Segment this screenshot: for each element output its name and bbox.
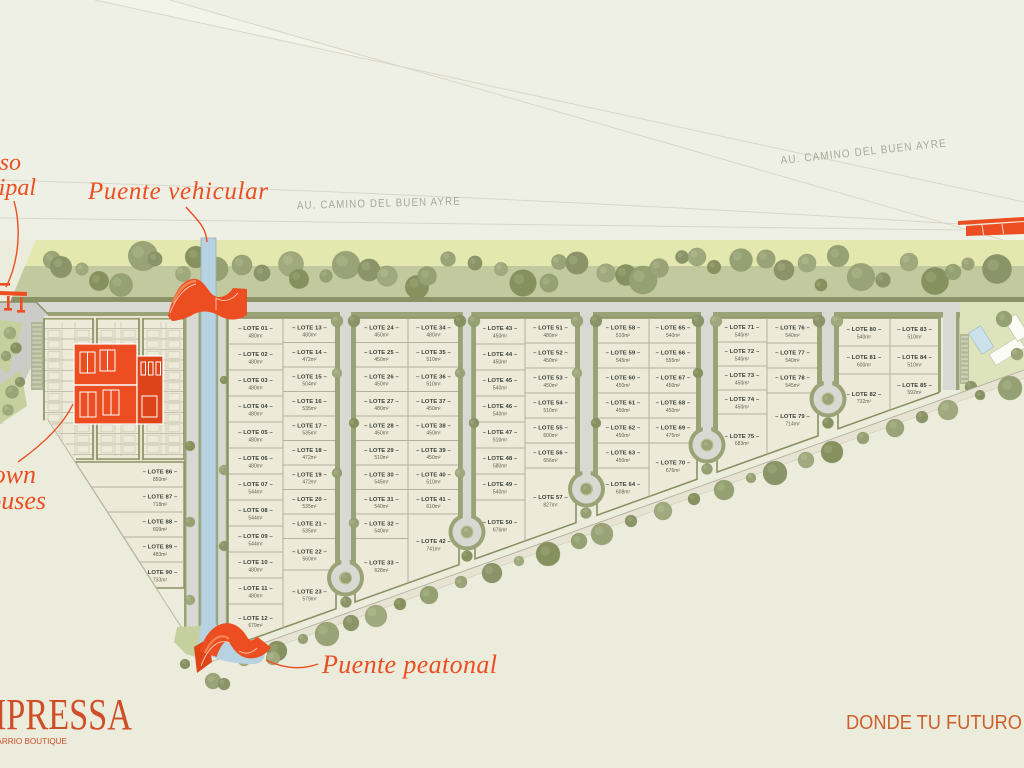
svg-text:– LOTE 48 –: – LOTE 48 – bbox=[483, 456, 518, 462]
svg-text:472m²: 472m² bbox=[302, 357, 317, 363]
svg-text:450m²: 450m² bbox=[374, 382, 389, 388]
svg-text:– LOTE 35 –: – LOTE 35 – bbox=[416, 350, 451, 356]
svg-text:510m²: 510m² bbox=[907, 362, 922, 368]
svg-text:480m²: 480m² bbox=[302, 333, 317, 339]
svg-text:628m²: 628m² bbox=[374, 568, 389, 574]
svg-text:– LOTE 88 –: – LOTE 88 – bbox=[143, 520, 178, 526]
svg-text:450m²: 450m² bbox=[543, 383, 558, 389]
svg-text:504m²: 504m² bbox=[302, 382, 317, 388]
svg-text:– LOTE 51 –: – LOTE 51 – bbox=[533, 326, 568, 332]
svg-text:– LOTE 78 –: – LOTE 78 – bbox=[775, 376, 810, 382]
svg-text:– LOTE 18 –: – LOTE 18 – bbox=[292, 448, 327, 454]
svg-text:510m²: 510m² bbox=[426, 382, 441, 388]
svg-text:– LOTE 52 –: – LOTE 52 – bbox=[533, 351, 568, 357]
svg-text:– LOTE 85 –: – LOTE 85 – bbox=[897, 383, 932, 389]
svg-text:510m²: 510m² bbox=[616, 333, 631, 339]
svg-text:– LOTE 04 –: – LOTE 04 – bbox=[238, 404, 273, 410]
svg-text:540m²: 540m² bbox=[735, 332, 750, 338]
svg-text:– LOTE 06 –: – LOTE 06 – bbox=[238, 456, 273, 462]
svg-text:– LOTE 13 –: – LOTE 13 – bbox=[292, 325, 327, 331]
svg-text:– LOTE 21 –: – LOTE 21 – bbox=[292, 522, 327, 528]
svg-text:– LOTE 44 –: – LOTE 44 – bbox=[483, 352, 518, 358]
svg-text:510m²: 510m² bbox=[374, 455, 389, 461]
svg-text:– LOTE 30 –: – LOTE 30 – bbox=[364, 472, 399, 478]
svg-text:town: town bbox=[0, 460, 36, 489]
svg-text:– LOTE 80 –: – LOTE 80 – bbox=[847, 327, 882, 333]
svg-text:545m²: 545m² bbox=[785, 383, 800, 389]
svg-text:544m²: 544m² bbox=[248, 489, 263, 495]
svg-text:– LOTE 61 –: – LOTE 61 – bbox=[606, 401, 641, 407]
svg-text:732m²: 732m² bbox=[857, 399, 872, 405]
svg-text:– LOTE 15 –: – LOTE 15 – bbox=[292, 374, 327, 380]
svg-text:– LOTE 11 –: – LOTE 11 – bbox=[238, 586, 273, 592]
svg-text:– LOTE 08 –: – LOTE 08 – bbox=[238, 508, 273, 514]
svg-text:CIPRESSA: CIPRESSA bbox=[0, 690, 132, 739]
svg-text:– LOTE 76 –: – LOTE 76 – bbox=[775, 326, 810, 332]
svg-text:827m²: 827m² bbox=[543, 502, 558, 508]
svg-text:676m²: 676m² bbox=[666, 468, 681, 474]
svg-text:480m²: 480m² bbox=[248, 567, 263, 573]
svg-text:– LOTE 50 –: – LOTE 50 – bbox=[483, 520, 518, 526]
svg-text:– LOTE 24 –: – LOTE 24 – bbox=[364, 325, 399, 331]
svg-text:– LOTE 77 –: – LOTE 77 – bbox=[775, 351, 810, 357]
svg-text:– LOTE 17 –: – LOTE 17 – bbox=[292, 423, 327, 429]
svg-text:– LOTE 68 –: – LOTE 68 – bbox=[656, 401, 691, 407]
svg-text:714m²: 714m² bbox=[785, 421, 800, 427]
svg-text:544m²: 544m² bbox=[248, 541, 263, 547]
svg-text:– LOTE 45 –: – LOTE 45 – bbox=[483, 378, 518, 384]
svg-text:– LOTE 71 –: – LOTE 71 – bbox=[725, 325, 760, 331]
svg-text:718m²: 718m² bbox=[153, 502, 168, 508]
svg-text:– LOTE 54 –: – LOTE 54 – bbox=[533, 401, 568, 407]
svg-text:– LOTE 01 –: – LOTE 01 – bbox=[238, 326, 273, 332]
svg-text:– LOTE 62 –: – LOTE 62 – bbox=[606, 426, 641, 432]
svg-text:540m²: 540m² bbox=[493, 411, 508, 417]
svg-text:450m²: 450m² bbox=[426, 406, 441, 412]
svg-text:– LOTE 79 –: – LOTE 79 – bbox=[775, 414, 810, 420]
svg-text:450m²: 450m² bbox=[493, 359, 508, 365]
svg-text:– LOTE 66 –: – LOTE 66 – bbox=[656, 351, 691, 357]
svg-text:540m²: 540m² bbox=[857, 334, 872, 340]
svg-text:450m²: 450m² bbox=[426, 455, 441, 461]
svg-text:– LOTE 29 –: – LOTE 29 – bbox=[364, 448, 399, 454]
svg-text:535m²: 535m² bbox=[302, 529, 317, 535]
svg-text:– LOTE 47 –: – LOTE 47 – bbox=[483, 430, 518, 436]
svg-text:– LOTE 58 –: – LOTE 58 – bbox=[606, 326, 641, 332]
svg-text:– LOTE 82 –: – LOTE 82 – bbox=[847, 392, 882, 398]
svg-text:580m²: 580m² bbox=[493, 463, 508, 469]
svg-text:535m²: 535m² bbox=[302, 406, 317, 412]
svg-text:Puente vehicular: Puente vehicular bbox=[87, 178, 268, 205]
svg-text:– LOTE 57 –: – LOTE 57 – bbox=[533, 495, 568, 501]
svg-text:540m²: 540m² bbox=[785, 333, 800, 339]
svg-text:– LOTE 25 –: – LOTE 25 – bbox=[364, 350, 399, 356]
svg-text:741m²: 741m² bbox=[426, 546, 441, 552]
svg-text:483m²: 483m² bbox=[153, 552, 168, 558]
svg-text:– LOTE 53 –: – LOTE 53 – bbox=[533, 376, 568, 382]
svg-text:– LOTE 32 –: – LOTE 32 – bbox=[364, 522, 399, 528]
svg-text:– LOTE 73 –: – LOTE 73 – bbox=[725, 373, 760, 379]
svg-text:510m²: 510m² bbox=[426, 357, 441, 363]
svg-text:510m²: 510m² bbox=[543, 408, 558, 414]
svg-text:450m²: 450m² bbox=[374, 333, 389, 339]
svg-text:555m²: 555m² bbox=[666, 358, 681, 364]
svg-text:535m²: 535m² bbox=[302, 504, 317, 510]
svg-text:510m²: 510m² bbox=[493, 437, 508, 443]
svg-text:– LOTE 23 –: – LOTE 23 – bbox=[292, 589, 327, 595]
svg-text:540m²: 540m² bbox=[666, 333, 681, 339]
svg-text:544m²: 544m² bbox=[248, 515, 263, 521]
svg-text:– LOTE 38 –: – LOTE 38 – bbox=[416, 423, 451, 429]
svg-text:475m²: 475m² bbox=[666, 433, 681, 439]
svg-text:472m²: 472m² bbox=[302, 480, 317, 486]
svg-text:– LOTE 60 –: – LOTE 60 – bbox=[606, 376, 641, 382]
svg-text:– LOTE 12 –: – LOTE 12 – bbox=[238, 616, 273, 622]
svg-text:– LOTE 05 –: – LOTE 05 – bbox=[238, 430, 273, 436]
svg-text:545m²: 545m² bbox=[374, 480, 389, 486]
svg-text:houses: houses bbox=[0, 486, 46, 515]
svg-text:600m²: 600m² bbox=[543, 433, 558, 439]
svg-text:– LOTE 56 –: – LOTE 56 – bbox=[533, 451, 568, 457]
svg-text:– LOTE 39 –: – LOTE 39 – bbox=[416, 448, 451, 454]
svg-text:– LOTE 81 –: – LOTE 81 – bbox=[847, 355, 882, 361]
svg-text:– LOTE 84 –: – LOTE 84 – bbox=[897, 355, 932, 361]
svg-text:733m²: 733m² bbox=[153, 577, 168, 583]
svg-text:480m²: 480m² bbox=[248, 437, 263, 443]
svg-text:– LOTE 10 –: – LOTE 10 – bbox=[238, 560, 273, 566]
svg-text:510m²: 510m² bbox=[907, 334, 922, 340]
svg-text:– LOTE 27 –: – LOTE 27 – bbox=[364, 399, 399, 405]
svg-text:– LOTE 16 –: – LOTE 16 – bbox=[292, 399, 327, 405]
svg-text:450m²: 450m² bbox=[666, 383, 681, 389]
svg-text:450m²: 450m² bbox=[735, 380, 750, 386]
svg-text:– LOTE 87 –: – LOTE 87 – bbox=[143, 495, 178, 501]
svg-text:480m²: 480m² bbox=[248, 463, 263, 469]
svg-text:– LOTE 64 –: – LOTE 64 – bbox=[606, 482, 641, 488]
svg-text:– LOTE 02 –: – LOTE 02 – bbox=[238, 352, 273, 358]
svg-text:DONDE TU FUTURO: DONDE TU FUTURO bbox=[846, 712, 1022, 734]
svg-text:– LOTE 63 –: – LOTE 63 – bbox=[606, 451, 641, 457]
svg-text:600m²: 600m² bbox=[857, 362, 872, 368]
svg-text:– LOTE 69 –: – LOTE 69 – bbox=[656, 426, 691, 432]
svg-text:Puente peatonal: Puente peatonal bbox=[321, 650, 497, 679]
svg-text:– LOTE 40 –: – LOTE 40 – bbox=[416, 472, 451, 478]
svg-text:– LOTE 07 –: – LOTE 07 – bbox=[238, 482, 273, 488]
svg-text:679m²: 679m² bbox=[248, 623, 263, 629]
svg-text:– LOTE 42 –: – LOTE 42 – bbox=[416, 539, 451, 545]
svg-text:principal: principal bbox=[0, 175, 36, 201]
svg-text:480m²: 480m² bbox=[426, 333, 441, 339]
svg-text:– LOTE 49 –: – LOTE 49 – bbox=[483, 482, 518, 488]
svg-text:450m²: 450m² bbox=[374, 357, 389, 363]
svg-text:– LOTE 75 –: – LOTE 75 – bbox=[725, 434, 760, 440]
svg-text:– LOTE 65 –: – LOTE 65 – bbox=[656, 326, 691, 332]
svg-text:480m²: 480m² bbox=[374, 406, 389, 412]
svg-text:480m²: 480m² bbox=[248, 359, 263, 365]
svg-text:450m²: 450m² bbox=[493, 333, 508, 339]
svg-text:850m²: 850m² bbox=[153, 477, 168, 483]
svg-text:450m²: 450m² bbox=[374, 431, 389, 437]
svg-text:610m²: 610m² bbox=[426, 504, 441, 510]
svg-text:535m²: 535m² bbox=[302, 431, 317, 437]
svg-text:– LOTE 20 –: – LOTE 20 – bbox=[292, 497, 327, 503]
svg-text:– LOTE 41 –: – LOTE 41 – bbox=[416, 497, 451, 503]
svg-text:Acceso: Acceso bbox=[0, 150, 21, 176]
svg-text:450m²: 450m² bbox=[426, 431, 441, 437]
svg-text:– LOTE 74 –: – LOTE 74 – bbox=[725, 397, 760, 403]
svg-text:– LOTE 72 –: – LOTE 72 – bbox=[725, 349, 760, 355]
svg-text:– LOTE 33 –: – LOTE 33 – bbox=[364, 561, 399, 567]
svg-text:472m²: 472m² bbox=[302, 455, 317, 461]
svg-text:BARRIO BOUTIQUE: BARRIO BOUTIQUE bbox=[0, 737, 67, 746]
svg-text:480m²: 480m² bbox=[248, 411, 263, 417]
svg-text:450m²: 450m² bbox=[543, 358, 558, 364]
svg-text:540m²: 540m² bbox=[374, 504, 389, 510]
svg-text:540m²: 540m² bbox=[735, 356, 750, 362]
svg-text:– LOTE 89 –: – LOTE 89 – bbox=[143, 545, 178, 551]
svg-text:– LOTE 34 –: – LOTE 34 – bbox=[416, 325, 451, 331]
svg-text:– LOTE 37 –: – LOTE 37 – bbox=[416, 399, 451, 405]
svg-text:– LOTE 86 –: – LOTE 86 – bbox=[143, 470, 178, 476]
svg-text:– LOTE 36 –: – LOTE 36 – bbox=[416, 374, 451, 380]
svg-text:579m²: 579m² bbox=[302, 597, 317, 603]
svg-text:560m²: 560m² bbox=[302, 557, 317, 563]
svg-text:480m²: 480m² bbox=[543, 333, 558, 339]
svg-text:540m²: 540m² bbox=[785, 358, 800, 364]
svg-text:545m²: 545m² bbox=[616, 358, 631, 364]
svg-text:450m²: 450m² bbox=[616, 433, 631, 439]
svg-text:510m²: 510m² bbox=[426, 480, 441, 486]
svg-text:609m²: 609m² bbox=[153, 527, 168, 533]
svg-text:– LOTE 55 –: – LOTE 55 – bbox=[533, 426, 568, 432]
svg-text:– LOTE 28 –: – LOTE 28 – bbox=[364, 423, 399, 429]
svg-text:608m²: 608m² bbox=[616, 489, 631, 495]
svg-text:480m²: 480m² bbox=[248, 593, 263, 599]
svg-text:– LOTE 59 –: – LOTE 59 – bbox=[606, 351, 641, 357]
svg-text:480m²: 480m² bbox=[248, 385, 263, 391]
svg-text:540m²: 540m² bbox=[493, 385, 508, 391]
svg-text:– LOTE 09 –: – LOTE 09 – bbox=[238, 534, 273, 540]
svg-text:450m²: 450m² bbox=[616, 408, 631, 414]
svg-text:450m²: 450m² bbox=[616, 458, 631, 464]
svg-text:676m²: 676m² bbox=[493, 527, 508, 533]
svg-text:450m²: 450m² bbox=[735, 404, 750, 410]
svg-text:683m²: 683m² bbox=[735, 441, 750, 447]
svg-text:540m²: 540m² bbox=[493, 489, 508, 495]
svg-text:– LOTE 83 –: – LOTE 83 – bbox=[897, 327, 932, 333]
svg-text:– LOTE 67 –: – LOTE 67 – bbox=[656, 376, 691, 382]
svg-text:656m²: 656m² bbox=[543, 458, 558, 464]
svg-text:480m²: 480m² bbox=[248, 333, 263, 339]
svg-text:– LOTE 19 –: – LOTE 19 – bbox=[292, 472, 327, 478]
svg-text:540m²: 540m² bbox=[374, 529, 389, 535]
svg-text:– LOTE 22 –: – LOTE 22 – bbox=[292, 550, 327, 556]
svg-text:– LOTE 14 –: – LOTE 14 – bbox=[292, 350, 327, 356]
svg-text:– LOTE 46 –: – LOTE 46 – bbox=[483, 404, 518, 410]
svg-text:– LOTE 43 –: – LOTE 43 – bbox=[483, 326, 518, 332]
svg-text:592m²: 592m² bbox=[907, 390, 922, 396]
svg-text:– LOTE 70 –: – LOTE 70 – bbox=[656, 461, 691, 467]
svg-text:– LOTE 03 –: – LOTE 03 – bbox=[238, 378, 273, 384]
svg-text:450m²: 450m² bbox=[616, 383, 631, 389]
svg-text:– LOTE 26 –: – LOTE 26 – bbox=[364, 374, 399, 380]
svg-text:– LOTE 31 –: – LOTE 31 – bbox=[364, 497, 399, 503]
svg-text:450m²: 450m² bbox=[666, 408, 681, 414]
